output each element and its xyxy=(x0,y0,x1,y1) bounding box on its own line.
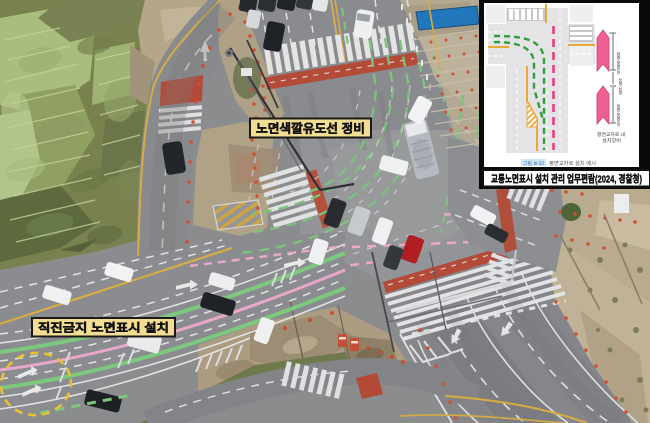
svg-text:그림 Ⅲ-10: 그림 Ⅲ-10 xyxy=(523,160,544,167)
svg-text:100-150: 100-150 xyxy=(618,78,623,95)
svg-text:평면교차로 내: 평면교차로 내 xyxy=(597,131,625,138)
svg-text:300-500cm: 300-500cm xyxy=(616,52,621,75)
svg-text:직진금지 노면표시 설치: 직진금지 노면표시 설치 xyxy=(38,321,169,335)
svg-text:노면색깔유도선 정비: 노면색깔유도선 정비 xyxy=(256,121,365,136)
svg-text:평면교차로 설치 예시: 평면교차로 설치 예시 xyxy=(549,160,596,167)
svg-text:설치장비: 설치장비 xyxy=(602,137,621,144)
svg-text:교통노면표시 설치 관리 업무편람(2024, 경찰청): 교통노면표시 설치 관리 업무편람(2024, 경찰청) xyxy=(491,173,642,186)
svg-text:300-500cm: 300-500cm xyxy=(616,104,621,127)
